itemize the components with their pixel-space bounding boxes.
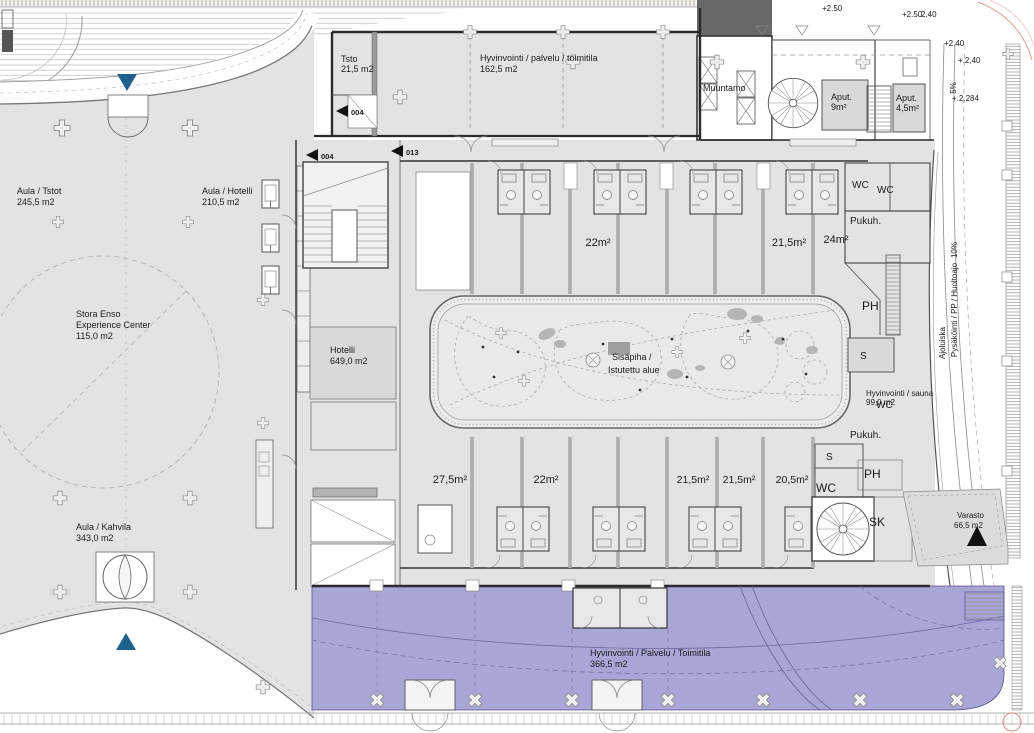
bathroom-pod [498, 170, 550, 214]
storage-room-upper [416, 172, 470, 290]
ph-south: PH [864, 467, 881, 481]
aput45-name: Aput. [896, 93, 917, 103]
site-marker-box [2, 30, 13, 52]
sk-label: SK [869, 515, 885, 529]
room-22-lower: 22m² [533, 474, 558, 486]
hotelli-name: Hotelli [330, 345, 355, 355]
reception-desk [256, 440, 273, 528]
room-22-upper: 22m² [585, 237, 610, 249]
sauna-room [848, 338, 894, 372]
ramp-line1: Ajoluiska [938, 326, 947, 359]
wellness-south-area: 366,5 m2 [590, 659, 628, 669]
bathroom-pod [786, 170, 838, 214]
bathroom-pod [689, 507, 741, 551]
s-south: S [826, 452, 833, 463]
bathroom-pod [497, 507, 549, 551]
aput45-area: 4,5m² [896, 103, 919, 113]
sidewalk-band [0, 713, 1034, 724]
elevator [262, 180, 279, 208]
room-275-lower: 27,5m² [433, 474, 468, 486]
hotelli-area: 649,0 m2 [330, 356, 368, 366]
sauna-wing-floor [845, 163, 930, 263]
sisapiha-1: Sisäpiha / [612, 352, 652, 362]
stora-enso-area: 115,0 m2 [76, 331, 113, 341]
level-250a: +2.50 [822, 4, 843, 13]
aput9-name: Aput. [831, 92, 852, 102]
aula-tstot-name: Aula / Tstot [17, 186, 62, 196]
level-240b: +2.40 [944, 39, 965, 48]
stair-east [886, 255, 900, 335]
aula-kahvila-name: Aula / Kahvila [76, 522, 131, 532]
varasto-area: 66,5 m2 [954, 521, 983, 530]
ph-north: PH [862, 299, 879, 313]
hall-area: 162,5 m2 [480, 64, 518, 74]
north-entrance-vestibule [108, 95, 148, 117]
muuntamo-name: Muuntamo [703, 83, 746, 93]
pukuh-south: Pukuh. [850, 430, 881, 441]
door-tag-label: 004 [321, 152, 334, 161]
ramp-line2: Pysäköinti / PP / Huoltoajo [950, 262, 959, 357]
level-250b: +2.50 [902, 10, 923, 19]
room-205-lower: 20,5m² [776, 474, 809, 486]
elevator [262, 224, 279, 252]
bathroom-pod [594, 170, 646, 214]
room-215-upper: 21,5m² [772, 237, 807, 249]
lobby-floor [0, 22, 314, 718]
s-north: S [860, 351, 867, 362]
aula-kahvila-area: 343,0 m2 [76, 533, 114, 543]
pukuh-north: Pukuh. [850, 216, 881, 227]
door-tag-label: 004 [351, 108, 364, 117]
room-24-upper: 24m² [823, 234, 848, 246]
site-edge-hatch-top [0, 0, 697, 7]
wellness-south-name: Hyvinvointi / Palvelu / Toimitila [590, 648, 710, 658]
hall-name: Hyvinvointi / palvelu / toimitila [480, 53, 598, 63]
tsto-name: Tsto [341, 54, 358, 64]
wc-north-2: WC [877, 185, 894, 196]
level-2284: +.2,284 [952, 94, 979, 103]
north-hall-floor [332, 32, 700, 136]
room-215a-lower: 21,5m² [677, 474, 710, 486]
stair-north [867, 86, 891, 132]
aula-tstot-area: 245,5 m2 [17, 197, 55, 207]
wc-mid: WC [876, 400, 893, 411]
level-240a: 2.40 [921, 10, 937, 19]
dark-roof-block [697, 0, 772, 36]
aula-hotelli-name: Aula / Hotelli [202, 186, 253, 196]
door-tag-label: 013 [406, 148, 419, 157]
tsto-area: 21,5 m2 [341, 64, 374, 74]
floor-plan-page: 004 004 013 Aula / Tstot 245,5 m2 Aula /… [0, 0, 1034, 733]
wc-south: WC [816, 481, 836, 495]
bathroom-pod [593, 507, 645, 551]
aput9-area: 9m² [831, 102, 847, 112]
ramp-slope: 10% [950, 242, 959, 258]
bathroom-corner [418, 505, 452, 553]
bathroom-pod [690, 170, 742, 214]
wc-north-1: WC [852, 180, 869, 191]
level-240c: +.2,40 [958, 56, 981, 65]
spiral-stair-south [817, 503, 869, 555]
sauna-suite-name: Hyvinvointi / sauna [866, 389, 934, 398]
aula-hotelli-area: 210,5 m2 [202, 197, 240, 207]
floor-plan-drawing: 004 004 013 Aula / Tstot 245,5 m2 Aula /… [0, 0, 1034, 733]
room-215b-lower: 21,5m² [723, 474, 756, 486]
stora-enso-2: Experience Center [76, 320, 151, 330]
kitchen-counter [313, 488, 377, 497]
slope-5: 5% [949, 82, 958, 94]
stora-enso-1: Stora Enso [76, 309, 121, 319]
elevator [262, 266, 279, 294]
varasto-name: Varasto [957, 511, 985, 520]
stair-southeast [965, 592, 1004, 620]
spiral-stair-north [768, 78, 817, 127]
sisapiha-2: Istutettu alue [608, 365, 660, 375]
